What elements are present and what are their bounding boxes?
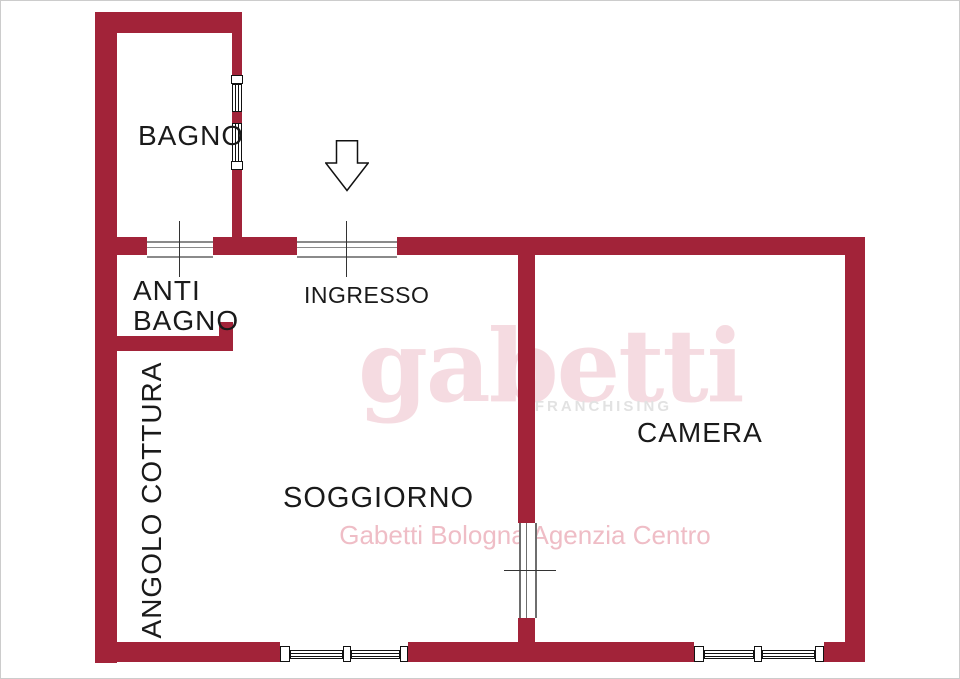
door-antibagno (147, 241, 213, 258)
door-ingresso (297, 241, 397, 258)
window-soggiorno-right (351, 650, 400, 659)
window-bagno-cap-bottom (231, 161, 243, 170)
wall-bottom-seg-mid (408, 642, 694, 662)
label-camera: CAMERA (637, 418, 763, 448)
door-ingresso-tick (346, 221, 347, 277)
wall-top-seg-right (397, 237, 865, 255)
watermark-franchising: FRANCHISING (480, 398, 672, 415)
window-bagno-upper (232, 84, 242, 112)
wall-bagno-right-upper (232, 33, 242, 75)
label-soggiorno: SOGGIORNO (283, 483, 474, 514)
floor-plan: gabetti FRANCHISING Gabetti Bologna Agen… (0, 0, 960, 679)
entrance-arrow-icon (325, 140, 369, 192)
label-ingresso: INGRESSO (304, 283, 429, 308)
window-soggiorno-cap-right (400, 646, 408, 662)
window-camera-left (704, 650, 754, 659)
watermark-brand-gabetti: gabetti (358, 316, 743, 416)
window-soggiorno-cap-left (280, 646, 290, 662)
label-anti-bagno-line2: BAGNO (133, 306, 239, 336)
wall-bottom-seg-right (824, 642, 865, 662)
door-antibagno-tick (179, 221, 180, 277)
window-camera-right (762, 650, 815, 659)
window-camera-cap-mid (754, 646, 762, 662)
label-angolo-cottura: ANGOLO COTTURA (137, 362, 167, 639)
wall-top-seg-left (95, 237, 147, 255)
label-bagno: BAGNO (138, 121, 244, 151)
wall-bagno-right-lower (232, 170, 242, 237)
wall-divider-stub (518, 618, 535, 646)
wall-bagno-top (95, 12, 242, 33)
wall-top-seg-mid (213, 237, 297, 255)
window-soggiorno-left (290, 650, 343, 659)
wall-bottom-seg-left (95, 642, 280, 662)
label-anti-bagno-line1: ANTI (133, 276, 239, 306)
window-soggiorno-cap-mid (343, 646, 351, 662)
door-camera-tick (504, 570, 556, 571)
wall-right (845, 237, 865, 662)
wall-antibagno-horizontal (95, 336, 233, 351)
label-anti-bagno: ANTI BAGNO (133, 276, 239, 336)
wall-divider-upper (518, 255, 535, 523)
window-camera-cap-right (815, 646, 824, 662)
window-camera-cap-left (694, 646, 704, 662)
window-bagno-cap-top (231, 75, 243, 84)
